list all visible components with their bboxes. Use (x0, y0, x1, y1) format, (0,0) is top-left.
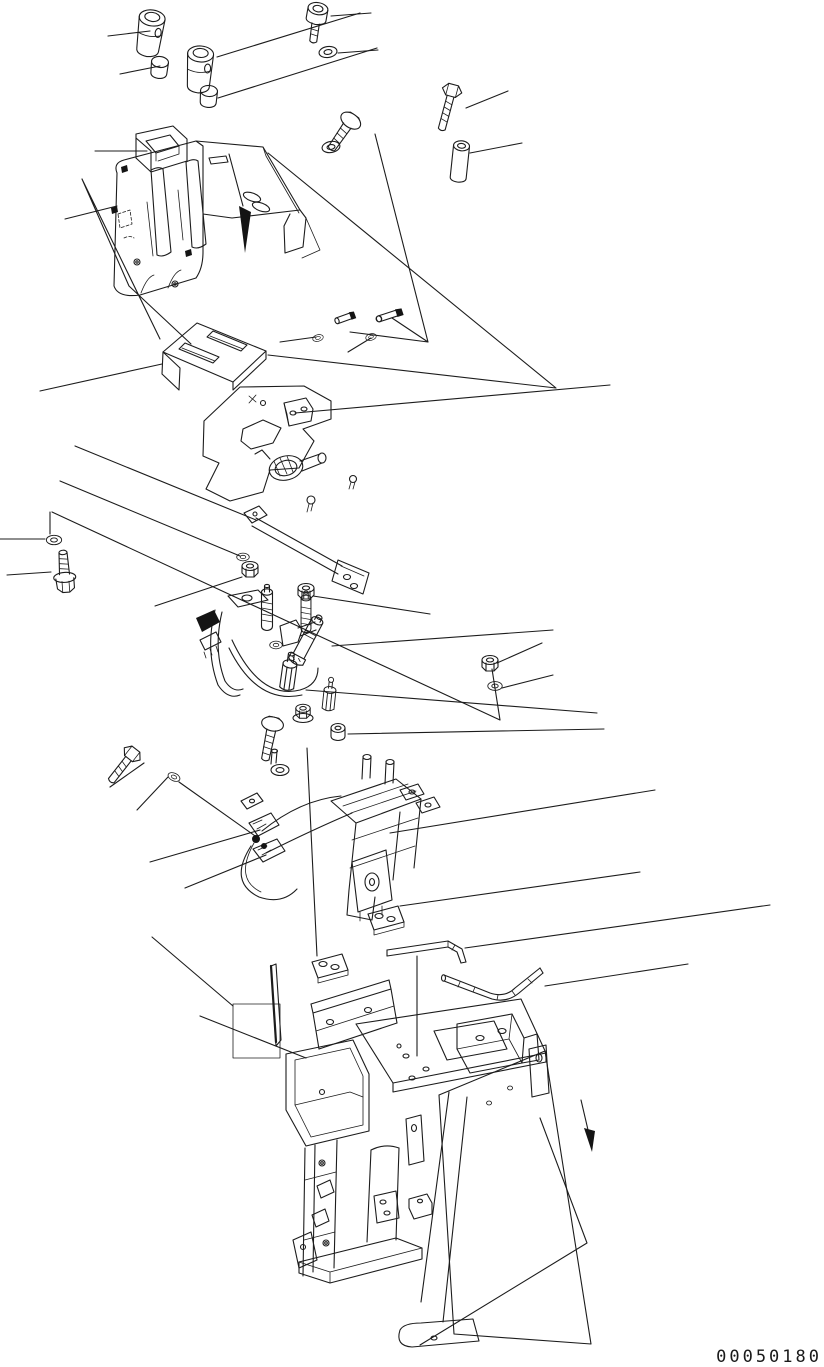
hinge-tab-mid (406, 1115, 424, 1165)
washer-small-1 (237, 553, 250, 561)
socket-head-screw (302, 1, 329, 44)
hex-nut-1 (242, 562, 258, 578)
washer-center (271, 765, 289, 776)
spacer-collar (450, 140, 470, 183)
connector-block (136, 126, 187, 172)
base-plate (299, 1238, 422, 1283)
shim-blade (233, 964, 281, 1058)
hex-bolt-center (254, 715, 285, 763)
washer-lower-left (167, 771, 182, 783)
cap-nut (331, 724, 345, 741)
mounting-rail (311, 980, 397, 1049)
solenoid-valve-assembly (241, 749, 440, 921)
lever-slot-plate (203, 386, 331, 501)
hex-bolt-lower-left (102, 743, 143, 788)
lever-knob-1 (134, 8, 166, 58)
threaded-stud-1 (262, 584, 273, 630)
bent-rod (442, 968, 544, 1000)
left-tray (286, 1040, 369, 1146)
pedestal (367, 1146, 432, 1242)
left-column (293, 1140, 337, 1276)
wire-clamp-bracket (196, 590, 318, 696)
washer-left (46, 535, 61, 544)
cover-mounting-plate (196, 141, 320, 258)
direction-arrow-bottom (581, 1100, 595, 1152)
hex-bolt-top-right (432, 82, 464, 133)
standoff-2 (322, 677, 337, 712)
side-panel (439, 1051, 591, 1344)
clevis-pin-1 (334, 311, 356, 326)
flange-bolt-left (52, 549, 77, 593)
hinge-tab-right (529, 1045, 549, 1097)
console-frame-stand (286, 980, 591, 1347)
direction-arrow-top (229, 154, 251, 253)
deck-cover-bracket (457, 1014, 539, 1073)
pin-washer-1 (312, 333, 324, 342)
flange-nut (293, 704, 313, 722)
clevis-pin-2 (375, 307, 403, 323)
right-leg (399, 1092, 479, 1347)
console-cover (111, 141, 206, 296)
flat-bent-bar (387, 941, 466, 963)
boot-plate (162, 323, 266, 390)
hex-nut-right (482, 656, 498, 672)
drawing-number: 00050180 (716, 1347, 822, 1367)
support-bracket (244, 506, 369, 594)
lever-knob-2 (185, 45, 214, 94)
damper-lever (255, 450, 357, 512)
exploded-view-canvas: 00050180 (0, 0, 824, 1367)
deck (356, 999, 546, 1105)
parts-diagram-page: 00050180 (0, 0, 824, 1367)
washer-top-1 (318, 45, 337, 58)
terminal-plate-2 (312, 954, 348, 983)
